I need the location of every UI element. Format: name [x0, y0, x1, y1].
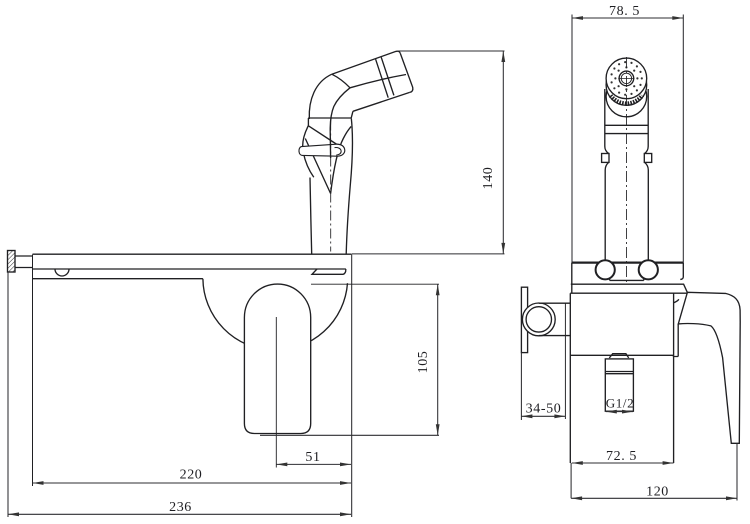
svg-text:105: 105 [416, 351, 431, 374]
svg-text:G1/2: G1/2 [606, 396, 634, 411]
svg-text:72. 5: 72. 5 [606, 449, 637, 464]
svg-text:120: 120 [646, 485, 669, 500]
svg-text:220: 220 [180, 468, 203, 483]
svg-text:78. 5: 78. 5 [609, 4, 640, 19]
svg-text:51: 51 [305, 450, 320, 465]
svg-text:34-50: 34-50 [526, 402, 562, 417]
svg-text:140: 140 [481, 167, 496, 190]
svg-text:236: 236 [169, 500, 192, 515]
